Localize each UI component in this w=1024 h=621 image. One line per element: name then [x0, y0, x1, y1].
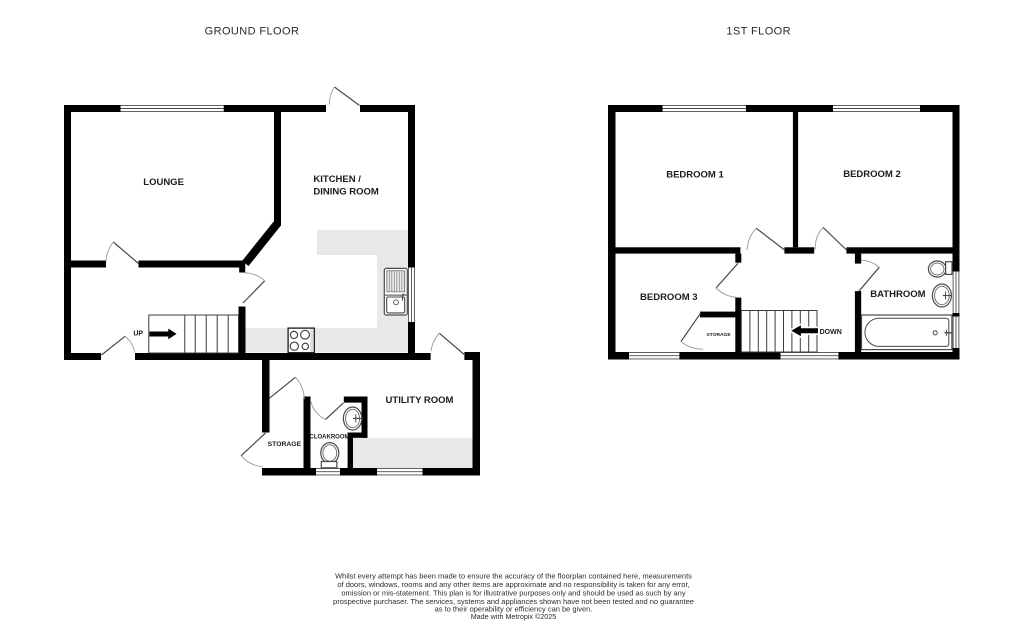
- svg-text:KITCHEN /: KITCHEN /: [313, 174, 361, 185]
- svg-text:UTILITY ROOM: UTILITY ROOM: [386, 395, 454, 406]
- svg-text:DOWN: DOWN: [820, 329, 842, 336]
- svg-text:STORAGE: STORAGE: [268, 441, 302, 448]
- svg-text:Made with Metropix ©2025: Made with Metropix ©2025: [471, 612, 557, 621]
- svg-text:BEDROOM 3: BEDROOM 3: [640, 292, 698, 303]
- svg-text:DINING ROOM: DINING ROOM: [313, 187, 379, 198]
- svg-text:STORAGE: STORAGE: [707, 332, 732, 338]
- svg-text:BEDROOM 2: BEDROOM 2: [843, 169, 901, 180]
- svg-text:BEDROOM 1: BEDROOM 1: [666, 169, 724, 180]
- svg-text:CLOAKROOM: CLOAKROOM: [310, 435, 350, 441]
- svg-text:1ST FLOOR: 1ST FLOOR: [726, 26, 791, 38]
- svg-text:LOUNGE: LOUNGE: [143, 177, 184, 188]
- svg-text:UP: UP: [133, 331, 143, 338]
- svg-text:GROUND FLOOR: GROUND FLOOR: [205, 26, 300, 38]
- svg-text:BATHROOM: BATHROOM: [870, 289, 925, 300]
